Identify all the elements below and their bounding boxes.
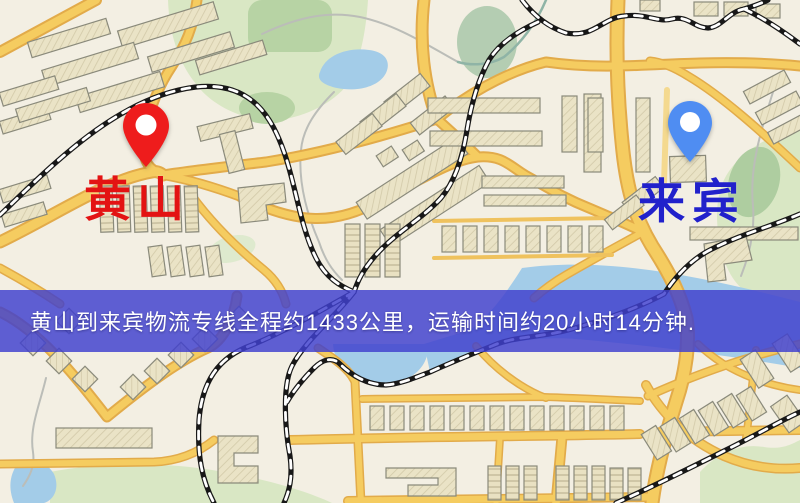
red-map-pin-icon bbox=[122, 102, 170, 168]
blue-map-pin-icon bbox=[667, 100, 713, 163]
destination-label: 来宾 bbox=[638, 178, 746, 225]
route-info-text: 黄山到来宾物流专线全程约1433公里，运输时间约20小时14分钟. bbox=[0, 305, 695, 337]
origin-label: 黄山 bbox=[84, 176, 190, 223]
map-viewport[interactable]: 黄山 来宾 黄山到来宾物流专线全程约1433公里，运输时间约20小时14分钟. bbox=[0, 0, 800, 503]
route-info-banner: 黄山到来宾物流专线全程约1433公里，运输时间约20小时14分钟. bbox=[0, 290, 800, 352]
destination-pin[interactable] bbox=[667, 100, 713, 163]
map-base-layer bbox=[0, 0, 800, 503]
origin-pin[interactable] bbox=[122, 102, 170, 168]
